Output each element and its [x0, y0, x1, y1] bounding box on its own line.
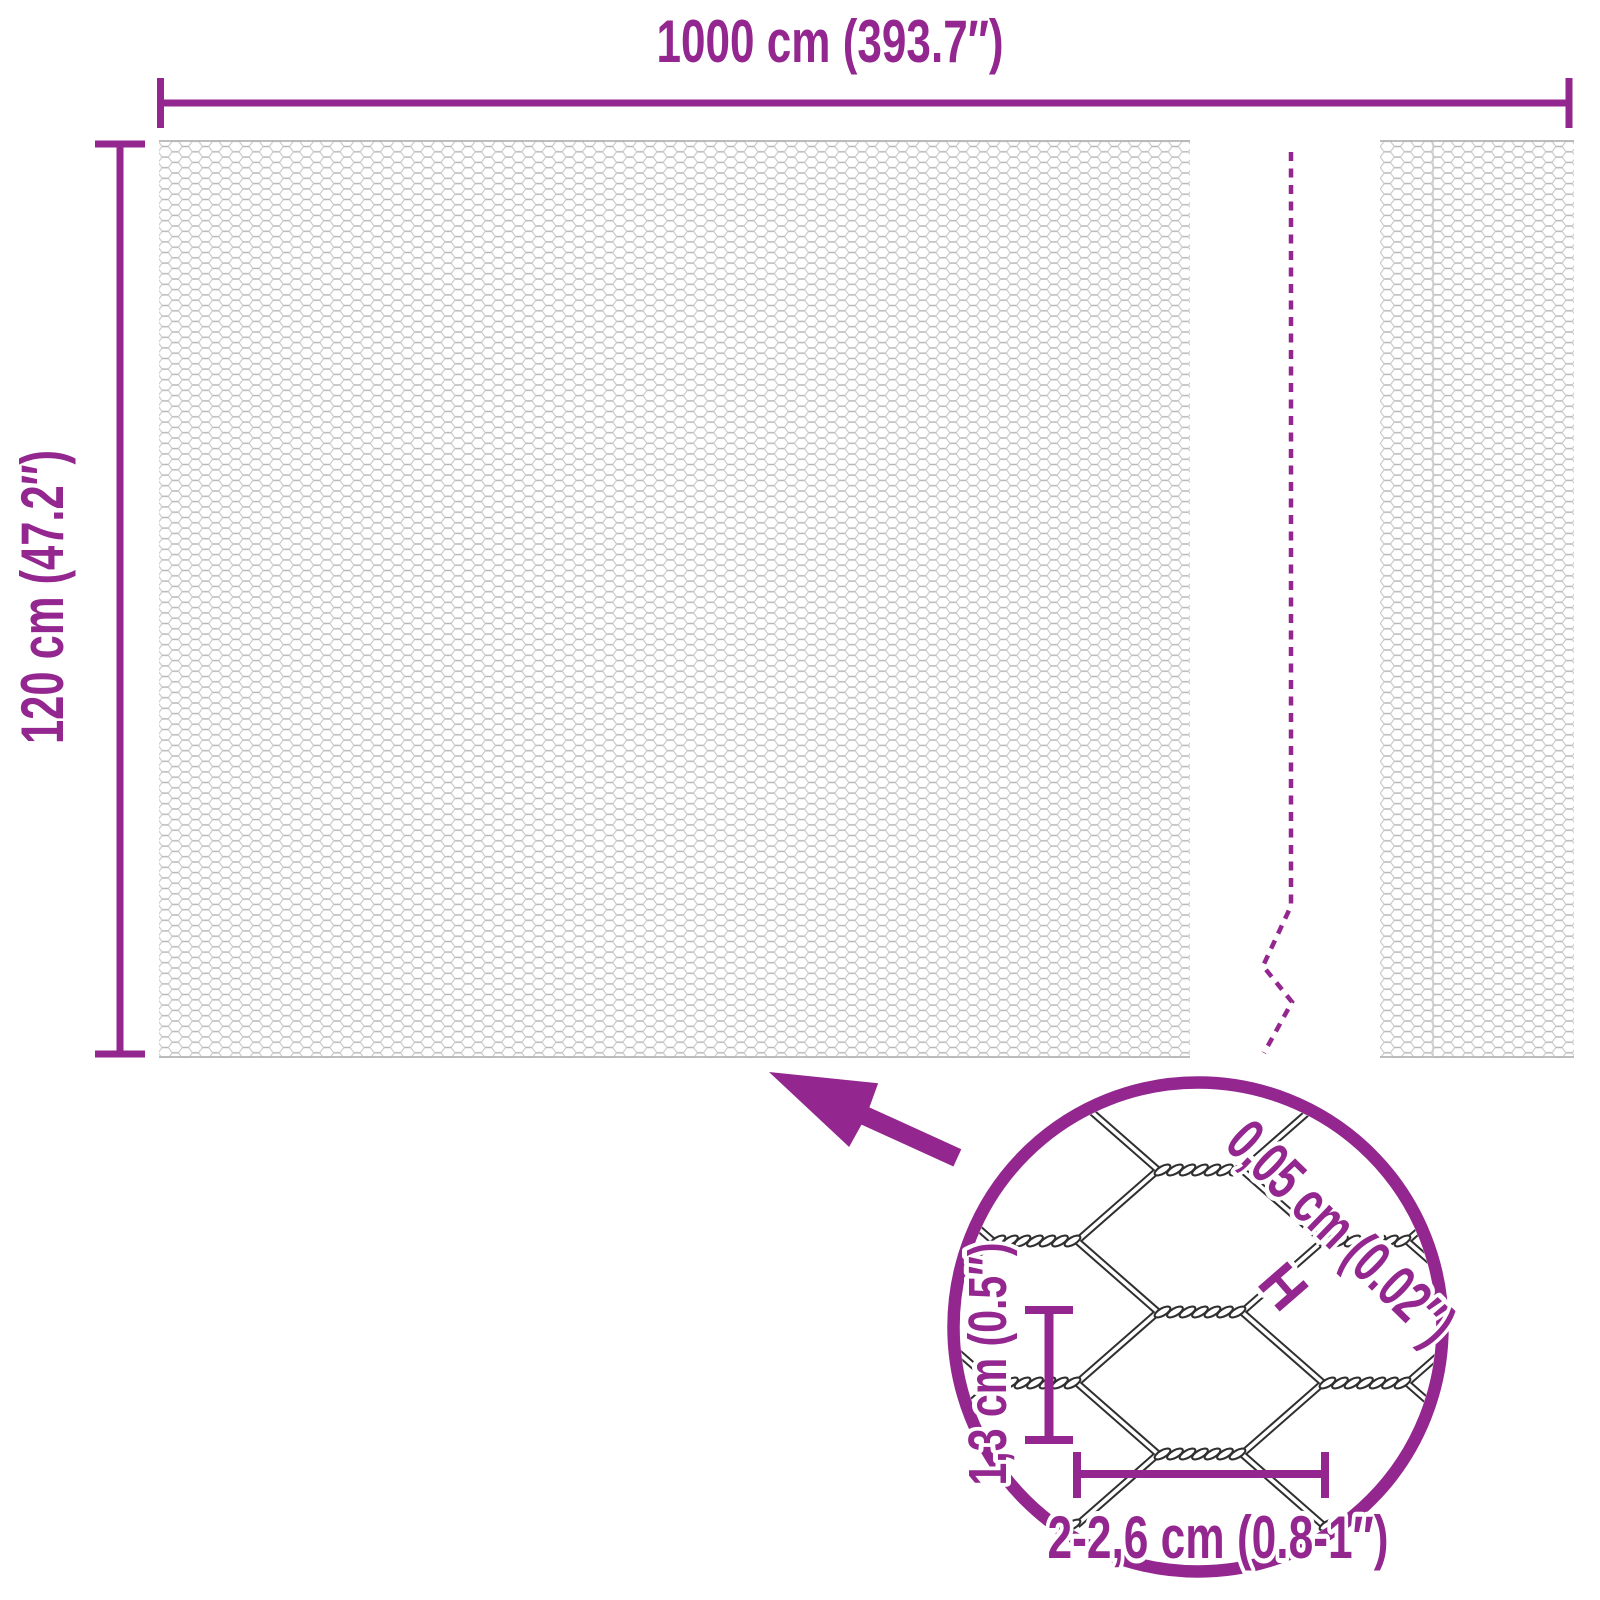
svg-text:120 cm (47.2″): 120 cm (47.2″): [9, 450, 76, 744]
svg-text:1000 cm (393.7″): 1000 cm (393.7″): [657, 8, 1004, 75]
svg-text:2-2,6 cm (0.8-1″): 2-2,6 cm (0.8-1″): [1048, 1504, 1389, 1571]
svg-text:1,3 cm (0.5″): 1,3 cm (0.5″): [958, 1243, 1018, 1486]
